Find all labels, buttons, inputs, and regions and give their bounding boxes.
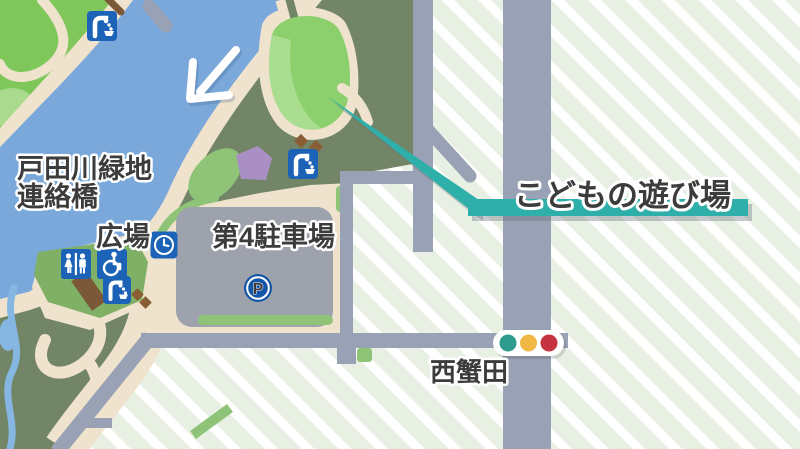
signal-red-light xyxy=(541,335,558,352)
intersection-label: 西蟹田 xyxy=(430,357,508,387)
traffic-signal-icon xyxy=(493,330,566,359)
parking-p-letter: P xyxy=(253,281,264,298)
toilet-icon xyxy=(61,249,91,279)
branch-road xyxy=(340,171,433,184)
road-stub xyxy=(337,348,356,364)
water-fountain-icon xyxy=(103,276,131,304)
signal-yellow-light xyxy=(520,335,537,352)
parking-p-icon: P xyxy=(244,274,272,302)
playground-label: こどもの遊び場 xyxy=(514,178,731,213)
left-vertical-road xyxy=(340,171,353,337)
parking-green-border xyxy=(198,315,333,325)
river-name-label-line1: 戸田川緑地 xyxy=(17,153,152,184)
signal-green-light xyxy=(500,335,517,352)
map-canvas: P 戸田川緑地 連絡橋 広場 第4駐車場 こどもの遊び場 西蟹田 xyxy=(0,0,800,449)
wheelchair-icon xyxy=(97,249,127,279)
water-fountain-icon xyxy=(288,149,318,179)
park-access-map: P 戸田川緑地 連絡橋 広場 第4駐車場 こどもの遊び場 西蟹田 xyxy=(0,0,800,449)
river-name-label-line2: 連絡橋 xyxy=(17,181,99,212)
parking-label: 第4駐車場 xyxy=(212,221,335,252)
clock-icon xyxy=(151,232,178,259)
water-fountain-icon xyxy=(87,11,117,41)
diagonal-road-stub xyxy=(83,418,112,428)
green-strip xyxy=(357,348,372,362)
plaza-label: 広場 xyxy=(96,221,150,252)
main-vertical-road xyxy=(503,0,551,449)
